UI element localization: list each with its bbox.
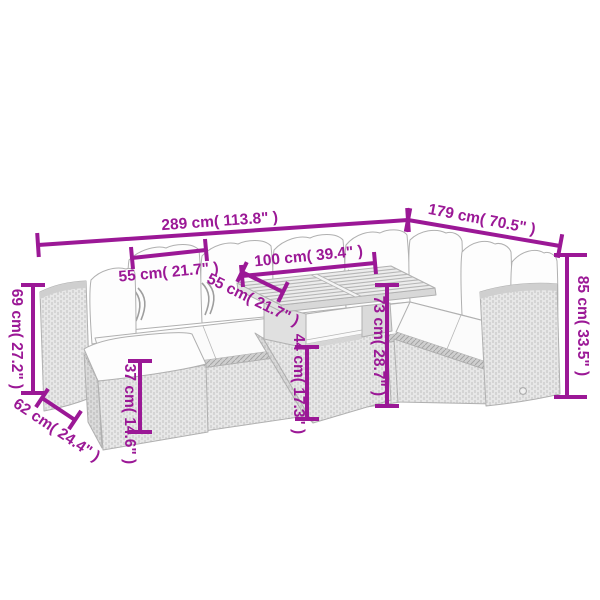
diagram-canvas: 289 cm( 113.8" ) 179 cm( 70.5" ) 55 cm( … (0, 0, 600, 600)
arm-knob (520, 388, 527, 395)
sofa-right-arm (480, 283, 560, 406)
back-cushion (409, 230, 463, 315)
furniture-dimension-diagram: 289 cm( 113.8" ) 179 cm( 70.5" ) 55 cm( … (0, 0, 600, 600)
dimension-label-table-height: 73 cm( 28.7" ) (370, 296, 387, 396)
dimension-label-total-height: 85 cm( 33.5" ) (574, 276, 591, 376)
dimension-label-table-base-height: 44 cm( 17.3" ) (290, 334, 307, 434)
right-arm-panel (480, 283, 560, 406)
dimension-label-ottoman-height: 37 cm( 14.6" ) (121, 364, 138, 464)
dimension-label-left-back-height: 69 cm( 27.2" ) (8, 289, 25, 389)
